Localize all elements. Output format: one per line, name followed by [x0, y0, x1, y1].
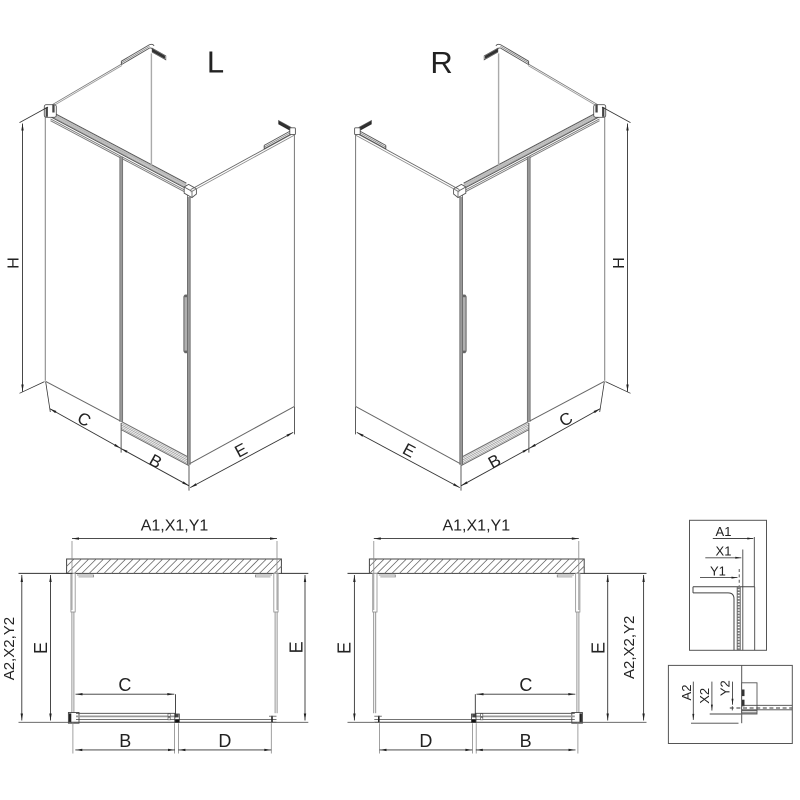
svg-text:E: E: [335, 642, 355, 654]
svg-text:E: E: [589, 642, 609, 654]
svg-text:X2: X2: [697, 688, 712, 704]
svg-text:D: D: [419, 731, 432, 751]
svg-text:Y2: Y2: [718, 680, 733, 696]
svg-text:Y1: Y1: [710, 563, 726, 578]
svg-text:A2: A2: [679, 685, 694, 701]
svg-text:R: R: [430, 45, 452, 80]
svg-text:B: B: [520, 731, 532, 751]
svg-text:C: C: [118, 675, 131, 695]
svg-text:A1: A1: [716, 524, 732, 539]
svg-text:A1,X1,Y1: A1,X1,Y1: [141, 517, 209, 534]
svg-text:E: E: [31, 642, 51, 654]
svg-text:H: H: [611, 257, 628, 269]
svg-text:A2,X2,Y2: A2,X2,Y2: [621, 616, 638, 679]
svg-text:A2,X2,Y2: A2,X2,Y2: [1, 617, 18, 680]
svg-text:X1: X1: [716, 543, 732, 558]
svg-text:B: B: [119, 731, 131, 751]
svg-text:H: H: [6, 257, 23, 269]
svg-text:L: L: [207, 45, 224, 80]
svg-text:C: C: [519, 675, 532, 695]
svg-text:D: D: [218, 731, 231, 751]
svg-text:E: E: [287, 641, 307, 653]
svg-text:A1,X1,Y1: A1,X1,Y1: [442, 517, 510, 534]
